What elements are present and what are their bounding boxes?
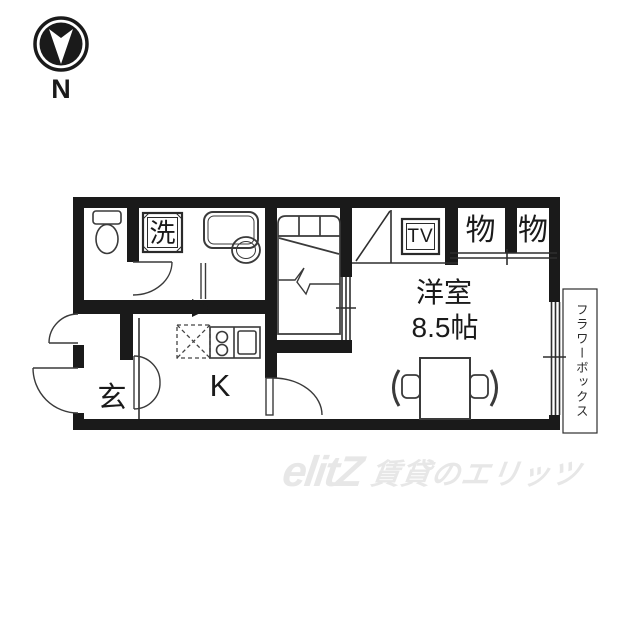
entrance-door-arc-lower — [33, 368, 78, 413]
floor-plan-drawing — [0, 0, 640, 640]
kitchen-counter — [210, 327, 260, 358]
bed-break-mark — [278, 268, 340, 294]
laundry-room-label: 洗 — [143, 215, 182, 251]
stove-burner — [217, 332, 228, 343]
toilet-fixture — [93, 211, 121, 254]
floor-plan-page: { "canvas": { "width": 640, "height": 64… — [0, 0, 640, 640]
western-room-size: 8.5帖 — [375, 310, 515, 345]
dining-table-set — [394, 358, 497, 419]
chair-right — [470, 375, 488, 398]
refrigerator-space — [177, 325, 210, 358]
chair-left-back — [394, 370, 400, 406]
toilet-door-arc — [133, 262, 172, 295]
bathroom-door-lines — [201, 263, 206, 299]
western-room-label: 洋室 — [375, 276, 513, 309]
storage-right-label: 物 — [511, 209, 555, 253]
compass-north-label: N — [39, 74, 83, 104]
bath-sink — [232, 237, 260, 263]
watermark-logo: elitZ — [280, 448, 365, 497]
flower-box-label: フラワーボックス — [565, 292, 596, 430]
stove-burner — [217, 345, 228, 356]
main-room-door-arc — [266, 378, 322, 415]
blanket-fold-line — [279, 238, 339, 254]
alcove-sliding-panel — [336, 277, 356, 340]
table — [420, 358, 470, 419]
kitchen-sink — [238, 331, 256, 354]
bed — [278, 216, 340, 334]
entrance-door-arc-upper — [49, 314, 78, 343]
shelf-diagonal — [356, 211, 390, 261]
compass-north-icon — [35, 18, 87, 70]
chair-left — [402, 375, 420, 398]
chair-right-back — [491, 370, 497, 406]
watermark-text: 賃貸のエリッツ — [368, 451, 584, 493]
tv-panel-label: TV — [402, 220, 439, 253]
watermark: elitZ 賃貸のエリッツ — [279, 446, 585, 498]
storage-left-label: 物 — [456, 209, 505, 253]
kitchen-label: K — [198, 365, 242, 405]
entrance-label: 玄 — [86, 378, 138, 418]
